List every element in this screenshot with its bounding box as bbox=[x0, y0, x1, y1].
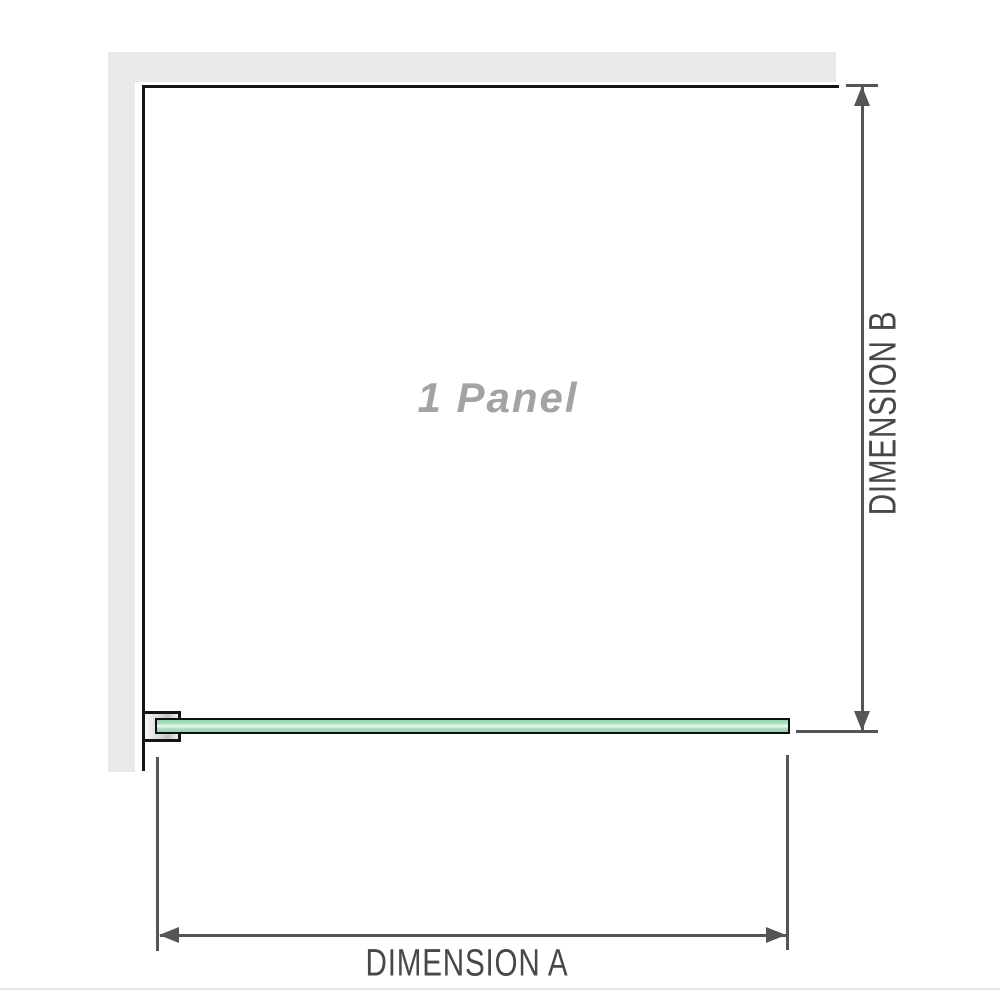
arrow-down-icon bbox=[854, 711, 870, 731]
dimension-a-line bbox=[160, 934, 786, 937]
arrow-left-icon bbox=[159, 927, 179, 943]
arrow-up-icon bbox=[854, 86, 870, 106]
dimension-a-left-extension-line bbox=[156, 757, 159, 951]
arrow-right-icon bbox=[766, 927, 786, 943]
panel-count-label: 1 Panel bbox=[417, 374, 578, 422]
dimension-a-label: DIMENSION A bbox=[366, 943, 569, 986]
panel-outline-left-edge bbox=[142, 85, 145, 771]
shower-panel-dimension-diagram: 1 Panel DIMENSION B DIMENSION A bbox=[0, 0, 1000, 1000]
bottom-divider bbox=[0, 988, 1000, 990]
wall-left-strip bbox=[108, 52, 135, 772]
dimension-b-label: DIMENSION B bbox=[863, 311, 906, 516]
glass-panel-plan-view bbox=[155, 718, 790, 734]
wall-top-strip bbox=[108, 52, 836, 82]
dimension-a-right-extension-line bbox=[786, 755, 789, 950]
panel-outline-top-edge bbox=[142, 85, 839, 88]
